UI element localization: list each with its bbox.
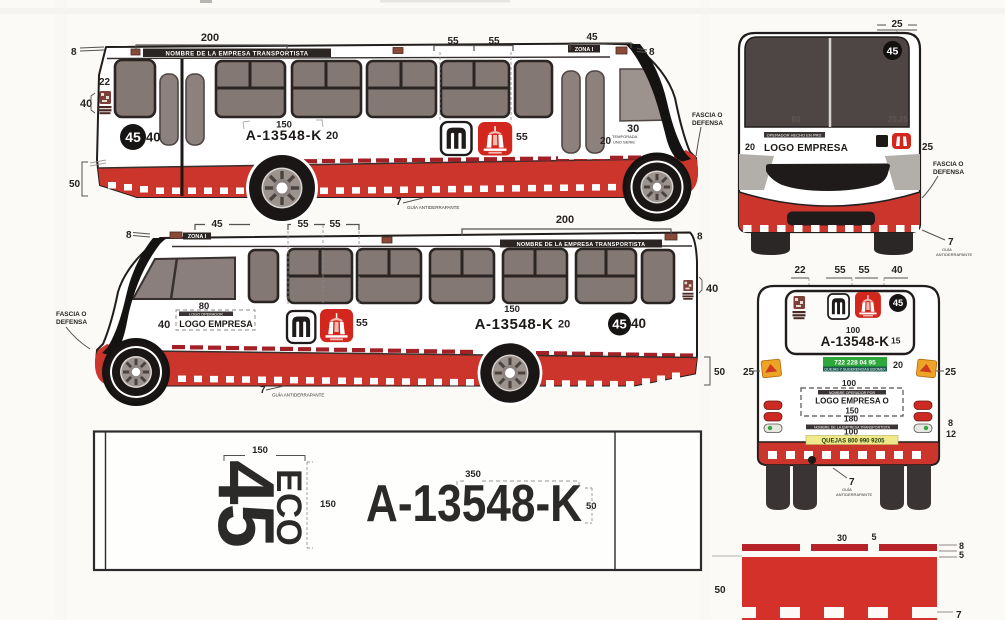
svg-text:GUÍA ANTIDERRAPANTE: GUÍA ANTIDERRAPANTE <box>407 204 459 210</box>
svg-text:150: 150 <box>320 499 336 510</box>
svg-text:45: 45 <box>893 298 903 308</box>
svg-text:722 228 04 95: 722 228 04 95 <box>834 360 876 367</box>
svg-text:80: 80 <box>792 115 801 124</box>
svg-text:25: 25 <box>743 367 755 378</box>
svg-text:NOMBRE OPERADOR POR: NOMBRE OPERADOR POR <box>829 391 876 395</box>
svg-text:50: 50 <box>69 179 81 190</box>
svg-text:8: 8 <box>948 418 953 428</box>
svg-text:100: 100 <box>842 378 856 388</box>
svg-text:8: 8 <box>126 230 132 241</box>
svg-text:50: 50 <box>714 367 726 378</box>
svg-text:200: 200 <box>556 214 574 226</box>
svg-text:150: 150 <box>504 304 520 315</box>
svg-text:180: 180 <box>844 414 858 424</box>
svg-text:8: 8 <box>71 47 77 58</box>
svg-text:QUEJAS 800 990 9205: QUEJAS 800 990 9205 <box>821 439 885 445</box>
svg-text:GUÍA ANTIDERRAPANTE: GUÍA ANTIDERRAPANTE <box>272 392 324 398</box>
svg-text:ZONA I: ZONA I <box>188 234 207 240</box>
svg-text:200: 200 <box>201 32 219 44</box>
svg-text:ECO: ECO <box>269 469 308 546</box>
svg-text:NOMBRE DE LA EMPRESA TRANSPORT: NOMBRE DE LA EMPRESA TRANSPORTISTA <box>165 52 308 58</box>
svg-text:7: 7 <box>956 610 962 620</box>
svg-text:5: 5 <box>871 532 876 542</box>
svg-text:5: 5 <box>959 550 964 560</box>
svg-text:55: 55 <box>858 265 870 276</box>
svg-text:45: 45 <box>887 45 899 57</box>
svg-text:UNO SERIE: UNO SERIE <box>613 140 635 145</box>
svg-text:8: 8 <box>697 232 703 243</box>
svg-text:12: 12 <box>946 429 956 439</box>
svg-text:45: 45 <box>211 219 223 230</box>
svg-text:100: 100 <box>844 427 858 437</box>
svg-text:20: 20 <box>558 319 570 331</box>
svg-text:25: 25 <box>922 142 934 153</box>
svg-text:40: 40 <box>891 265 903 276</box>
svg-text:DEFENSA: DEFENSA <box>933 169 964 176</box>
svg-text:25: 25 <box>891 19 903 30</box>
svg-text:8: 8 <box>649 47 655 58</box>
svg-text:A-13548-K: A-13548-K <box>821 334 890 349</box>
svg-text:30: 30 <box>837 533 847 543</box>
svg-text:TEMPORADA: TEMPORADA <box>612 134 638 139</box>
svg-text:15: 15 <box>891 336 901 346</box>
svg-text:LOGO EMPRESA: LOGO EMPRESA <box>764 143 848 154</box>
svg-text:LOGO EMPRESA O: LOGO EMPRESA O <box>815 397 889 406</box>
svg-text:40: 40 <box>80 98 92 110</box>
svg-text:25,25: 25,25 <box>888 115 909 124</box>
svg-text:20: 20 <box>326 130 338 142</box>
svg-text:55: 55 <box>356 317 368 329</box>
svg-text:45: 45 <box>125 129 141 145</box>
svg-text:QUEJAS Y SUGERENCIAS EDOMEX: QUEJAS Y SUGERENCIAS EDOMEX <box>824 368 886 372</box>
svg-text:45: 45 <box>612 317 626 332</box>
svg-text:50: 50 <box>714 585 726 596</box>
svg-text:55: 55 <box>329 219 341 230</box>
svg-text:LOGO OPERADOR: LOGO OPERADOR <box>189 313 223 317</box>
svg-text:55: 55 <box>516 131 528 143</box>
svg-text:20: 20 <box>893 360 903 370</box>
svg-text:25: 25 <box>945 367 957 378</box>
svg-text:OPERADOR HECHO EN PRD: OPERADOR HECHO EN PRD <box>767 133 822 138</box>
svg-text:A-13548-K: A-13548-K <box>246 127 323 143</box>
svg-text:A-13548-K: A-13548-K <box>475 316 554 333</box>
svg-text:45: 45 <box>586 32 598 43</box>
svg-text:7: 7 <box>396 197 402 208</box>
svg-text:40: 40 <box>631 316 646 331</box>
svg-text:LOGO EMPRESA: LOGO EMPRESA <box>179 319 253 329</box>
svg-text:55: 55 <box>834 265 846 276</box>
svg-text:40: 40 <box>146 130 160 145</box>
svg-text:40: 40 <box>706 283 718 295</box>
svg-text:50: 50 <box>586 501 597 512</box>
svg-text:ANTIDERRAPANTE: ANTIDERRAPANTE <box>836 492 872 497</box>
svg-text:7: 7 <box>260 385 266 396</box>
svg-text:ZONA I: ZONA I <box>575 47 594 53</box>
svg-text:A-13548-K: A-13548-K <box>366 475 582 533</box>
svg-text:DEFENSA: DEFENSA <box>56 319 87 326</box>
svg-text:NOMBRE DE LA EMPRESA TRANSPORT: NOMBRE DE LA EMPRESA TRANSPORTISTA <box>517 242 646 248</box>
svg-text:ANTIDERRAPANTE: ANTIDERRAPANTE <box>936 252 972 257</box>
svg-text:20: 20 <box>745 142 755 152</box>
svg-text:55: 55 <box>297 219 309 230</box>
svg-text:150: 150 <box>252 445 268 456</box>
svg-text:FASCIA O: FASCIA O <box>933 161 963 168</box>
svg-text:22: 22 <box>99 77 111 88</box>
svg-text:FASCIA O: FASCIA O <box>56 311 86 318</box>
svg-text:22: 22 <box>794 265 806 276</box>
svg-text:DEFENSA: DEFENSA <box>692 120 723 127</box>
svg-text:FASCIA O: FASCIA O <box>692 112 722 119</box>
svg-text:20: 20 <box>600 136 612 147</box>
svg-text:40: 40 <box>158 319 170 331</box>
